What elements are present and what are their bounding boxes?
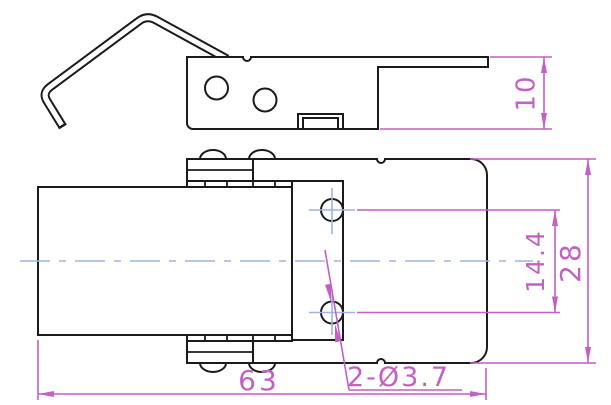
knuckle-bump xyxy=(249,150,275,159)
dim-value-28: 28 xyxy=(554,241,587,283)
dim-value-hole-callout: 2-Ø3.7 xyxy=(347,362,450,393)
dim-value-14.4: 14.4 xyxy=(521,229,550,293)
arrowhead-down xyxy=(541,113,547,129)
knuckle-bump xyxy=(200,150,226,159)
arrowhead-up xyxy=(585,159,591,175)
arrowhead-left xyxy=(38,391,54,397)
side-view xyxy=(45,18,488,129)
arrowhead-down xyxy=(585,347,591,363)
arrowhead-up xyxy=(552,210,558,226)
drawing-svg: 10 xyxy=(0,0,611,405)
knuckle-bump xyxy=(200,363,226,372)
dim-value-10: 10 xyxy=(512,74,542,111)
dim-value-63: 63 xyxy=(238,364,280,397)
arrowhead-right xyxy=(470,391,486,397)
arrowhead-down xyxy=(552,297,558,313)
arrowhead-up xyxy=(541,57,547,73)
latch-technical-drawing: 10 xyxy=(0,0,611,405)
